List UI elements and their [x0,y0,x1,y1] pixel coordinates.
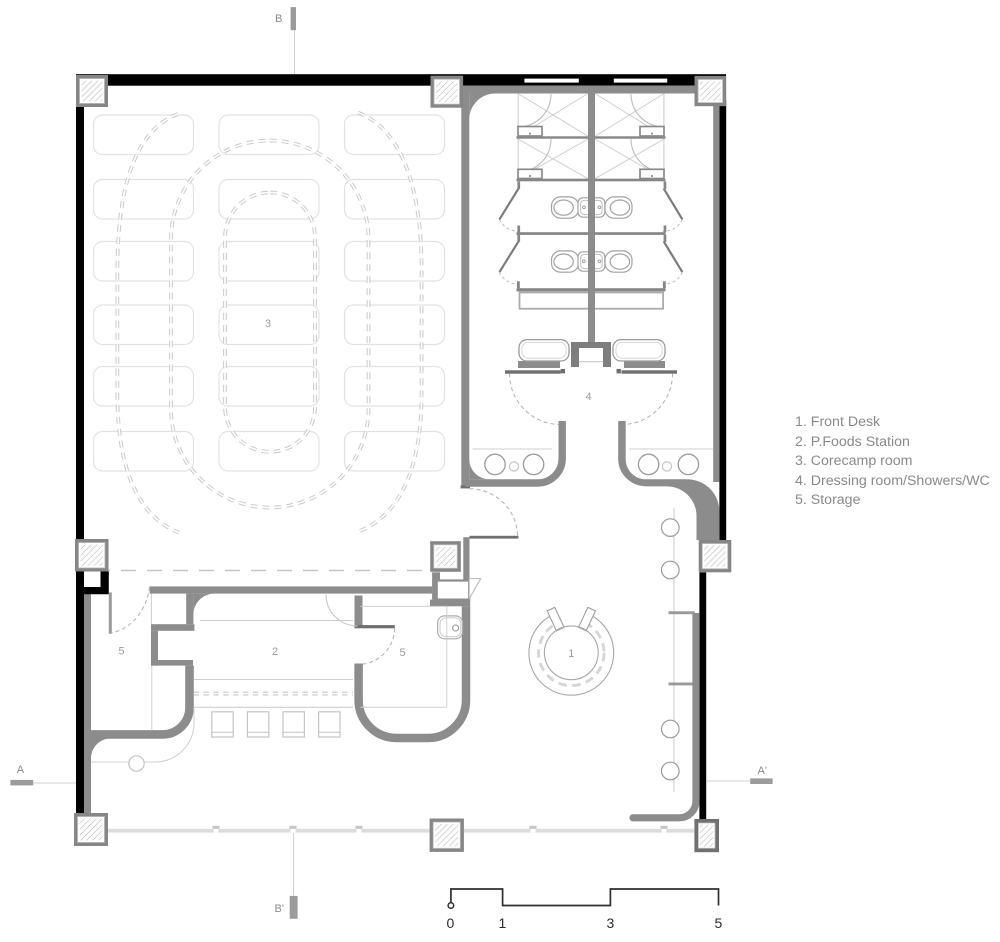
svg-text:A: A [17,764,25,776]
svg-text:5: 5 [119,646,125,658]
svg-text:2: 2 [272,646,278,658]
svg-text:3: 3 [607,915,615,931]
svg-text:5: 5 [400,647,406,659]
svg-text:1: 1 [499,915,507,931]
svg-text:3: 3 [265,318,271,330]
svg-text:B': B' [275,903,284,915]
svg-text:5: 5 [715,915,723,931]
svg-text:1: 1 [568,648,574,660]
svg-text:B: B [275,13,282,25]
svg-text:A': A' [758,765,767,777]
svg-text:4: 4 [586,391,592,403]
svg-text:0: 0 [447,915,455,931]
